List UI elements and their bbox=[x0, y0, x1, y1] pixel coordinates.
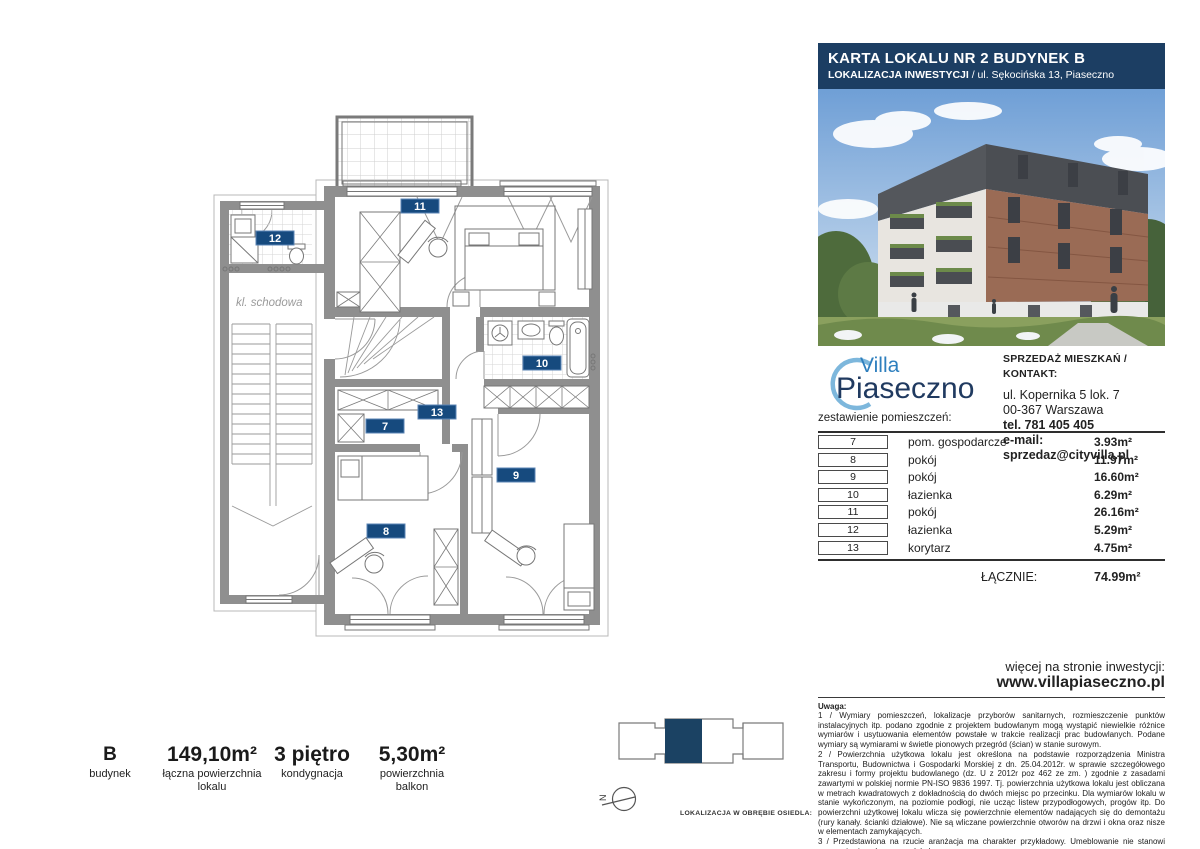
table-total-row: ŁĄCZNIE: 74.99m² bbox=[818, 559, 1165, 591]
villa-piaseczno-logo: Villa Piaseczno bbox=[818, 350, 998, 412]
logo-line2: Piaseczno bbox=[836, 372, 974, 405]
room-name: łazienka bbox=[908, 488, 952, 502]
table-row: 12 łazienka 5.29m² bbox=[818, 521, 1165, 539]
room-9-furniture bbox=[472, 419, 594, 610]
card-header: KARTA LOKALU NR 2 BUDYNEK B LOKALIZACJA … bbox=[818, 43, 1165, 89]
contact-heading: SPRZEDAŻ MIESZKAŃ / KONTAKT: bbox=[1003, 352, 1168, 382]
website-intro: więcej na stronie inwestycji: bbox=[818, 659, 1165, 674]
room-number: 10 bbox=[818, 488, 888, 502]
room-area: 11.97m² bbox=[1094, 453, 1138, 467]
website-url[interactable]: www.villapiaseczno.pl bbox=[818, 674, 1165, 692]
rooms-table-heading: zestawienie pomieszczeń: bbox=[818, 412, 952, 424]
room-number: 8 bbox=[818, 453, 888, 467]
card-title: KARTA LOKALU NR 2 BUDYNEK B bbox=[828, 50, 1155, 68]
total-label: ŁĄCZNIE: bbox=[981, 570, 1037, 584]
table-row: 10 łazienka 6.29m² bbox=[818, 486, 1165, 504]
contact-address1: ul. Kopernika 5 lok. 7 bbox=[1003, 388, 1168, 403]
stat-balcony: 5,30m² powierzchnia balkon bbox=[342, 744, 482, 793]
stairwell-label: kl. schodowa bbox=[236, 297, 302, 309]
room-label-11: 11 bbox=[414, 201, 426, 213]
room-name: pokój bbox=[908, 470, 937, 484]
contact-address2: 00-367 Warszawa bbox=[1003, 403, 1168, 418]
room-label-9: 9 bbox=[513, 470, 519, 482]
room-number: 9 bbox=[818, 470, 888, 484]
north-label: N bbox=[598, 795, 608, 802]
table-row: 11 pokój 26.16m² bbox=[818, 503, 1165, 521]
floor-plan: kl. schodowa bbox=[212, 94, 612, 654]
table-row: 9 pokój 16.60m² bbox=[818, 468, 1165, 486]
room-area: 6.29m² bbox=[1094, 488, 1132, 502]
room-name: pom. gospodarcze bbox=[908, 435, 1007, 449]
room-label-7: 7 bbox=[382, 421, 388, 433]
room-area: 4.75m² bbox=[1094, 541, 1132, 555]
room-number: 11 bbox=[818, 505, 888, 519]
total-area: 74.99m² bbox=[1094, 570, 1141, 584]
room-name: łazienka bbox=[908, 523, 952, 537]
room-name: pokój bbox=[908, 505, 937, 519]
room-area: 26.16m² bbox=[1094, 505, 1139, 519]
room-name: korytarz bbox=[908, 541, 951, 555]
room-area: 16.60m² bbox=[1094, 470, 1139, 484]
wardrobe-strip bbox=[484, 386, 589, 408]
location-label: LOKALIZACJA INWESTYCJI bbox=[828, 69, 969, 81]
rooms-table: 7 pom. gospodarcze 3.93m² 8 pokój 11.97m… bbox=[818, 431, 1165, 591]
notes-block: Uwaga: 1 / Wymiary pomieszczeń, lokaliza… bbox=[818, 697, 1165, 849]
highlighted-unit bbox=[665, 719, 702, 763]
room-number: 12 bbox=[818, 523, 888, 537]
table-row: 13 korytarz 4.75m² bbox=[818, 539, 1165, 557]
lokal-card-page: kl. schodowa bbox=[0, 0, 1200, 849]
stairwell: kl. schodowa bbox=[232, 297, 312, 526]
website-block: więcej na stronie inwestycji: www.villap… bbox=[818, 659, 1165, 692]
room-area: 5.29m² bbox=[1094, 523, 1132, 537]
room-label-8: 8 bbox=[383, 526, 389, 538]
stat-balcony-label: powierzchnia balkon bbox=[367, 768, 457, 793]
room-number: 7 bbox=[818, 435, 888, 449]
location-value: / ul. Sękocińska 13, Piaseczno bbox=[969, 69, 1114, 81]
room-label-13: 13 bbox=[431, 407, 443, 419]
room-11-furniture bbox=[337, 206, 592, 312]
estate-caption: LOKALIZACJA W OBRĘBIE OSIEDLA: bbox=[680, 810, 812, 817]
stat-balcony-value: 5,30m² bbox=[342, 744, 482, 766]
room-label-12: 12 bbox=[269, 233, 281, 245]
table-row: 7 pom. gospodarcze 3.93m² bbox=[818, 433, 1165, 451]
building-photo bbox=[818, 89, 1165, 346]
estate-locator bbox=[617, 716, 787, 766]
notes-heading: Uwaga: bbox=[818, 702, 1165, 711]
card-location: LOKALIZACJA INWESTYCJI / ul. Sękocińska … bbox=[828, 68, 1155, 82]
room-area: 3.93m² bbox=[1094, 435, 1132, 449]
terrace bbox=[337, 117, 472, 189]
north-indicator: N bbox=[594, 777, 646, 823]
room-name: pokój bbox=[908, 453, 937, 467]
winder-stair bbox=[340, 317, 434, 377]
table-row: 8 pokój 11.97m² bbox=[818, 451, 1165, 469]
room-label-10: 10 bbox=[536, 358, 548, 370]
room-number: 13 bbox=[818, 541, 888, 555]
notes-body: 1 / Wymiary pomieszczeń, lokalizacje prz… bbox=[818, 711, 1165, 849]
